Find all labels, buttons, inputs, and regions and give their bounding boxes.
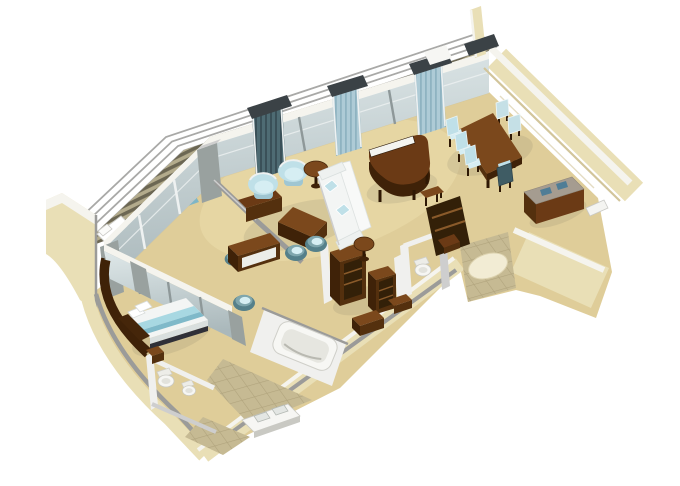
floor-plan-stage (0, 0, 680, 486)
open-cabinet (368, 266, 396, 314)
floor-plan-canvas (0, 0, 680, 486)
open-cabinet (330, 244, 366, 306)
